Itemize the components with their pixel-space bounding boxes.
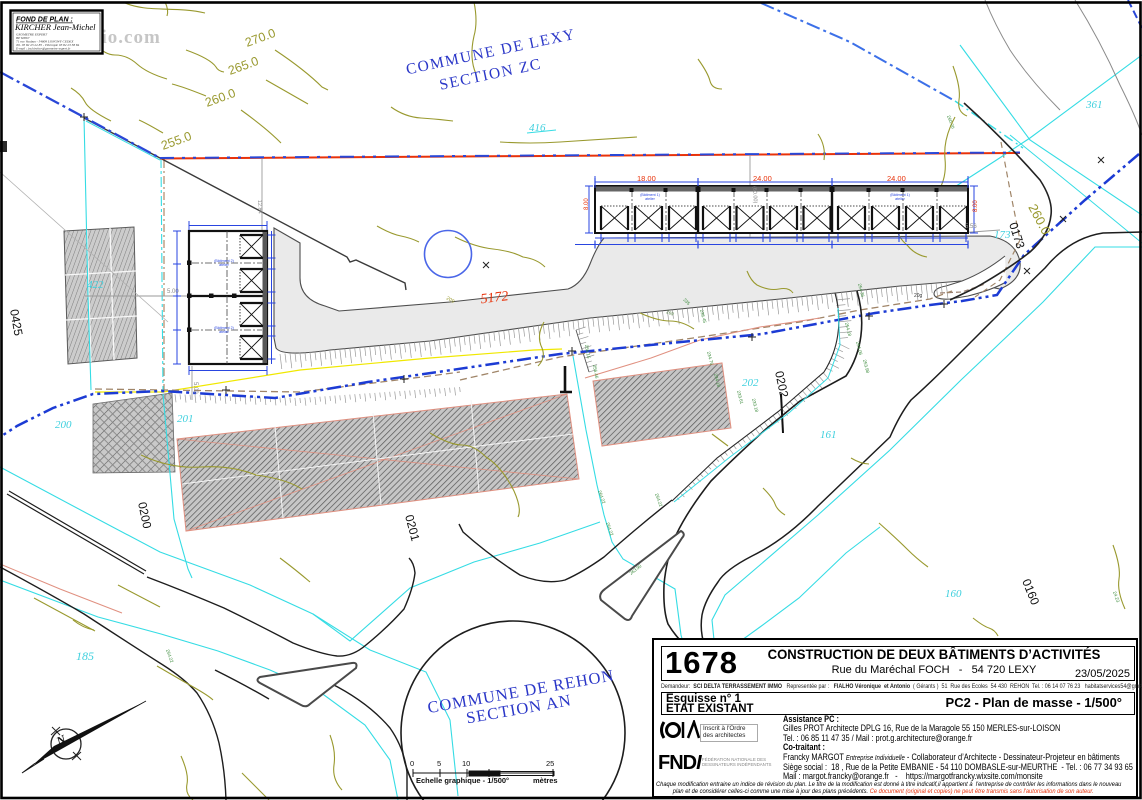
svg-text:5.56: 5.56	[965, 224, 977, 230]
svg-text:422: 422	[87, 279, 104, 291]
svg-text:161: 161	[820, 429, 837, 441]
svg-text:20g: 20g	[914, 293, 923, 299]
svg-text:atelier: atelier	[895, 197, 906, 201]
svg-text:atelier: atelier	[219, 263, 230, 267]
svg-text:0: 0	[410, 759, 414, 768]
svg-text:atelier: atelier	[645, 197, 656, 201]
svg-text:185: 185	[76, 649, 94, 663]
svg-text:202: 202	[742, 377, 759, 389]
svg-text:5.00: 5.00	[167, 289, 179, 295]
svg-text:atelier: atelier	[219, 330, 230, 334]
svg-text:5.00: 5.00	[192, 382, 198, 394]
svg-text:E-mail : jm.kircher@geometre-e: E-mail : jm.kircher@geometre-expert.fr	[15, 47, 71, 51]
svg-text:416: 416	[529, 122, 546, 134]
svg-text:8.00: 8.00	[584, 198, 590, 210]
svg-text:200: 200	[55, 419, 72, 431]
svg-text:5: 5	[437, 759, 441, 768]
svg-text:24.00: 24.00	[753, 174, 772, 183]
svg-text:361: 361	[1085, 99, 1103, 111]
svg-text:(60.00): (60.00)	[751, 186, 758, 204]
svg-text:25: 25	[546, 759, 554, 768]
svg-text:18.00: 18.00	[637, 174, 656, 183]
svg-text:Echelle graphique - 1/500°: Echelle graphique - 1/500°	[416, 776, 509, 785]
svg-text:160: 160	[945, 588, 962, 600]
svg-text:201: 201	[177, 413, 194, 425]
svg-text:8.00: 8.00	[973, 200, 979, 212]
svg-text:10: 10	[462, 759, 470, 768]
svg-text:mètres: mètres	[533, 776, 558, 785]
svg-text:24.00: 24.00	[887, 174, 906, 183]
svg-text:12.84: 12.84	[256, 200, 263, 214]
svg-text:KIRCHER Jean-Michel: KIRCHER Jean-Michel	[14, 22, 96, 32]
